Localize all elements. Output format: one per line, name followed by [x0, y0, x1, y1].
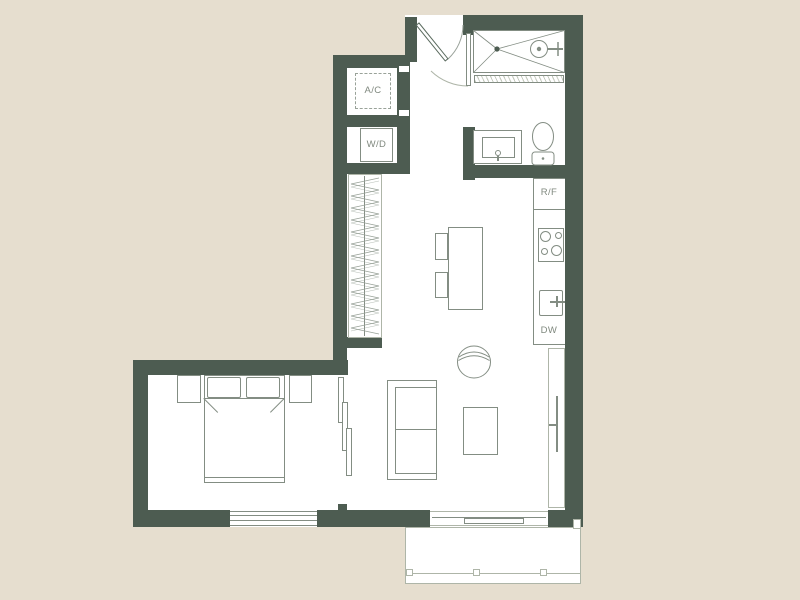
kitchen-faucet-handle	[556, 296, 558, 307]
armchair-icon	[455, 341, 493, 380]
nightstand	[177, 375, 201, 403]
blanket-line	[204, 477, 285, 478]
burner-icon	[541, 248, 548, 255]
balcony-edge	[573, 519, 581, 529]
jamb-notch	[399, 110, 409, 116]
coffee-table	[463, 407, 498, 455]
stool	[435, 233, 448, 260]
faucet-stem	[497, 156, 499, 161]
sofa-cushion-divider	[395, 429, 437, 430]
wall-left-upper	[333, 55, 347, 375]
pillow	[207, 377, 241, 398]
living-window-handle	[549, 424, 557, 426]
nightstand	[289, 375, 312, 403]
closet-hangers-icon	[349, 176, 381, 336]
wd-label: W/D	[360, 128, 393, 162]
bedroom-window	[230, 511, 317, 526]
toilet-icon	[529, 121, 557, 168]
sofa-cushions	[395, 387, 437, 474]
drain-icon	[494, 46, 499, 51]
wall-bath-bottom	[463, 165, 583, 178]
wall-wd-bottom	[347, 163, 410, 174]
bedroom-window-pane	[230, 515, 317, 516]
fridge-divider	[533, 209, 565, 210]
bed-sheet-line	[204, 398, 285, 399]
wall-bedroom-top	[133, 360, 348, 375]
shower-icon	[473, 30, 565, 73]
dishwasher-label: DW	[533, 325, 565, 335]
balcony-door-panel	[464, 518, 524, 524]
balcony-rail	[406, 573, 580, 574]
wall-right	[565, 15, 583, 527]
sliding-door-panel	[346, 428, 352, 476]
pillow	[246, 377, 280, 398]
stool	[435, 272, 448, 298]
kitchen-sink-icon	[539, 290, 563, 316]
fridge-label: R/F	[533, 187, 565, 197]
bathroom-door-arc	[430, 33, 470, 89]
wall-bottom-left	[133, 510, 230, 527]
burner-icon	[540, 231, 551, 242]
burner-icon	[551, 245, 562, 256]
island-table	[448, 227, 483, 310]
balcony	[405, 527, 581, 584]
balcony-post	[473, 569, 480, 576]
wall-bedroom-left	[133, 360, 148, 527]
balcony-post	[540, 569, 547, 576]
shower-glass-partition	[474, 75, 564, 83]
balcony-post	[406, 569, 413, 576]
floor-plan: A/C W/D R/F DW	[0, 0, 800, 600]
bedroom-window-pane	[230, 520, 317, 521]
wall-ac-wd-divider	[333, 115, 410, 127]
burner-icon	[555, 232, 562, 239]
wall-door-track-nub	[338, 504, 347, 511]
bathroom-door-leaf	[466, 33, 471, 86]
ac-label: A/C	[355, 73, 391, 109]
wall-closet-stub	[347, 337, 382, 348]
wall-bottom-middle	[317, 510, 430, 527]
